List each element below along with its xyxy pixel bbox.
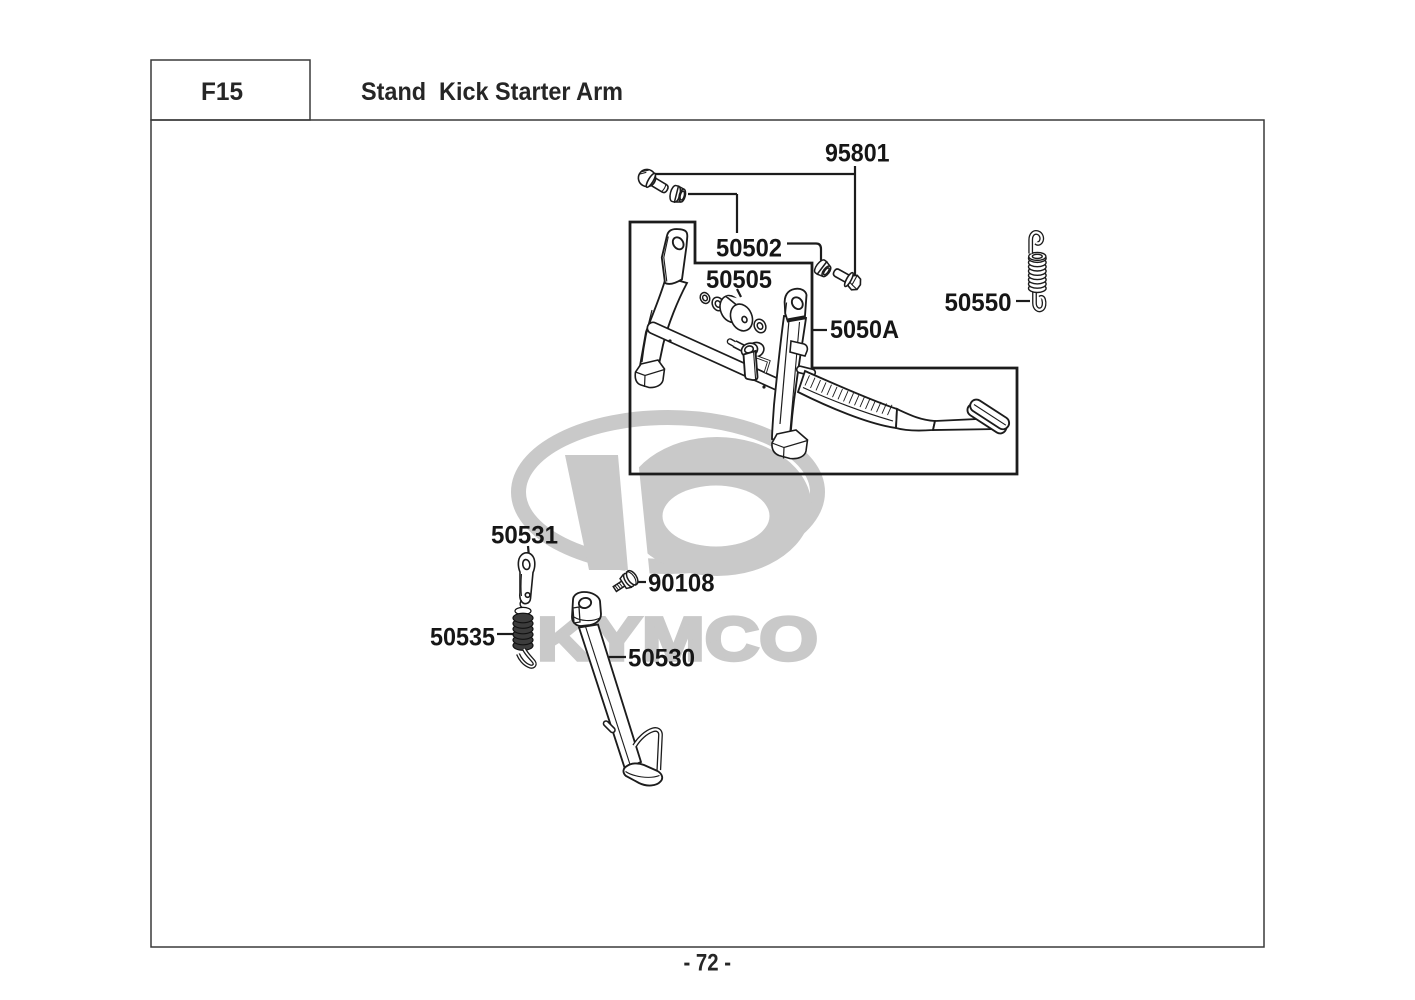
svg-text:95801: 95801	[825, 140, 890, 168]
svg-text:50502: 50502	[716, 235, 782, 263]
svg-text:50531: 50531	[491, 522, 558, 550]
svg-text:50535: 50535	[430, 624, 495, 652]
svg-text:F15: F15	[201, 78, 243, 106]
svg-text:50505: 50505	[706, 266, 772, 294]
svg-text:- 72 -: - 72 -	[684, 950, 732, 977]
svg-text:90108: 90108	[648, 570, 715, 598]
svg-text:50550: 50550	[945, 289, 1012, 317]
svg-text:50530: 50530	[628, 645, 695, 673]
svg-text:Stand Kick Starter Arm: Stand Kick Starter Arm	[361, 78, 623, 106]
svg-text:5050A: 5050A	[830, 316, 899, 344]
